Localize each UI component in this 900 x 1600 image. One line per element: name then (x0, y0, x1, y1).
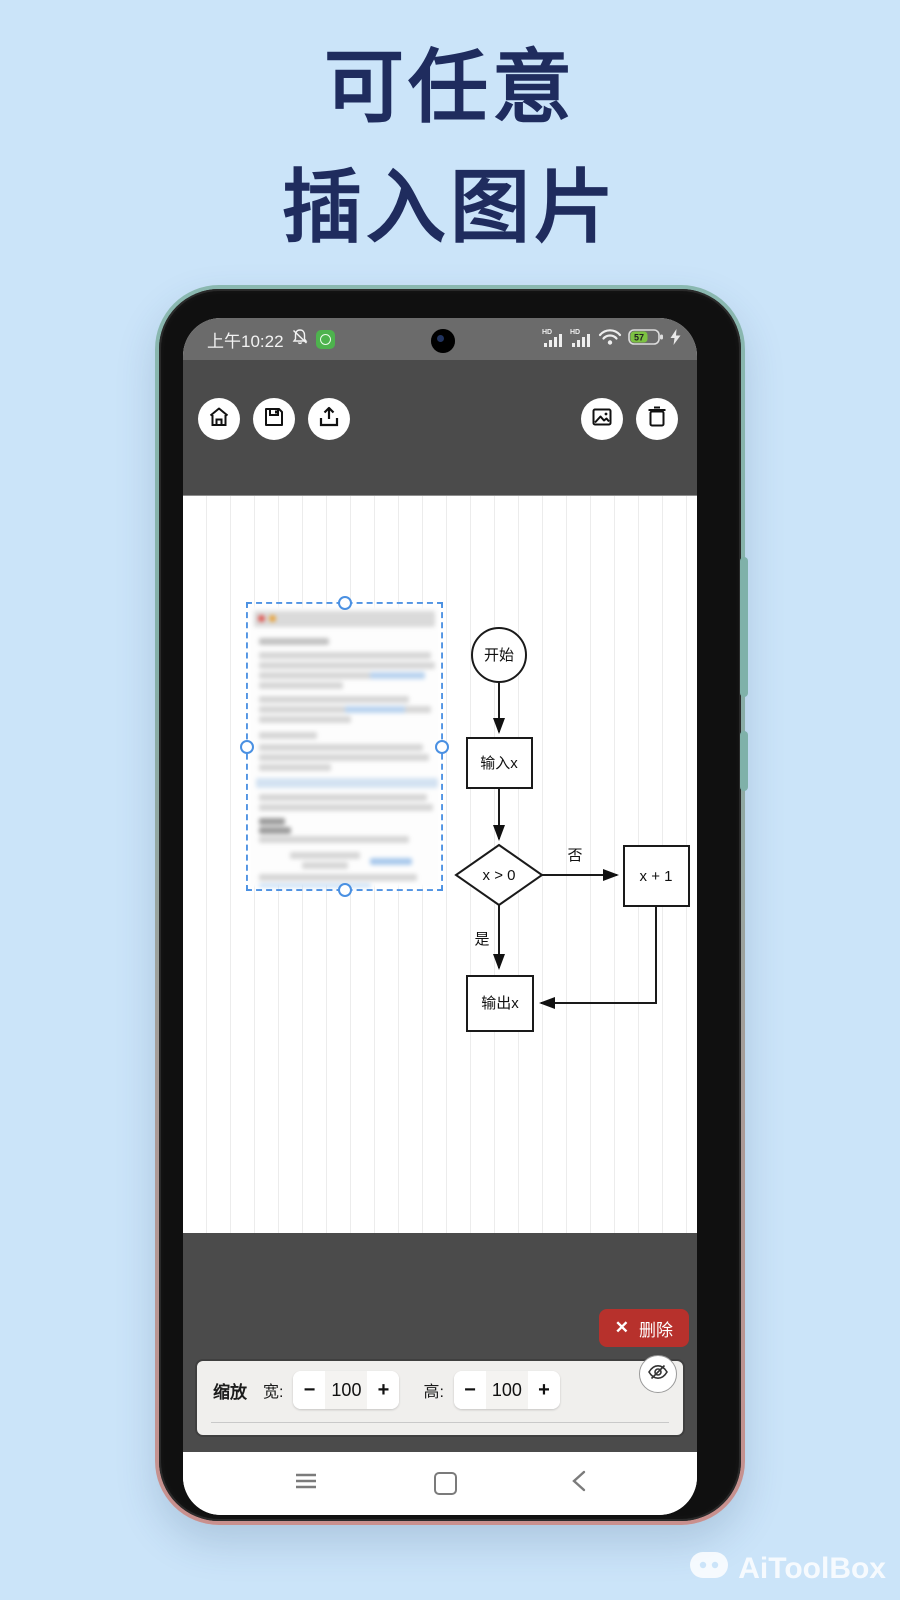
robot-icon (688, 1550, 730, 1588)
flow-increment-label: x + 1 (640, 868, 673, 885)
flow-connector (541, 906, 656, 1003)
width-increase-button[interactable]: + (367, 1371, 399, 1409)
watermark-label: AiToolBox (738, 1552, 886, 1586)
height-increase-button[interactable]: + (528, 1371, 560, 1409)
close-icon: ✕ (615, 1318, 629, 1338)
export-button[interactable] (308, 398, 350, 440)
watermark: AiToolBox (688, 1550, 886, 1588)
width-value: 100 (325, 1371, 367, 1409)
save-button[interactable] (253, 398, 295, 440)
promo-headline: 可任意 插入图片 (0, 28, 900, 268)
signal-sim1-icon: HD (542, 329, 564, 349)
home-button[interactable] (198, 398, 240, 440)
eye-off-icon (647, 1361, 669, 1388)
upload-icon (317, 405, 341, 434)
volume-button (740, 557, 748, 697)
bell-muted-icon (291, 328, 309, 351)
flow-input-label: 输入x (480, 755, 518, 772)
notification-app-icon (316, 330, 335, 349)
phone-screen: 上午10:22 HD (183, 318, 697, 1515)
hide-panel-button[interactable] (639, 1355, 677, 1393)
svg-text:57: 57 (634, 332, 644, 342)
home-icon (207, 405, 231, 434)
clock: 上午10:22 (207, 327, 284, 352)
height-stepper: − 100 + (454, 1371, 560, 1409)
signal-sim2-icon: HD (570, 329, 592, 349)
flow-condition-label: x > 0 (483, 867, 516, 884)
scale-panel: 缩放 宽: − 100 + 高: − 100 + (195, 1359, 685, 1437)
headline-line2: 插入图片 (0, 148, 900, 268)
back-button[interactable] (571, 1469, 587, 1498)
phone-frame: 上午10:22 HD (159, 289, 741, 1521)
resize-handle-top[interactable] (338, 596, 352, 610)
resize-handle-bottom[interactable] (338, 883, 352, 897)
charging-bolt-icon (670, 329, 681, 350)
scale-label: 缩放 (213, 1378, 247, 1403)
android-nav-bar (183, 1452, 697, 1515)
resize-handle-left[interactable] (240, 740, 254, 754)
height-decrease-button[interactable]: − (454, 1371, 486, 1409)
selected-image[interactable] (246, 602, 443, 891)
app-toolbar (183, 360, 697, 495)
flow-start-label: 开始 (484, 647, 514, 664)
front-camera (431, 329, 455, 353)
recents-button[interactable] (293, 1471, 319, 1496)
width-stepper: − 100 + (293, 1371, 399, 1409)
home-square-icon (434, 1472, 457, 1495)
trash-icon (646, 405, 668, 434)
clear-canvas-button[interactable] (636, 398, 678, 440)
width-decrease-button[interactable]: − (293, 1371, 325, 1409)
image-icon (590, 405, 614, 434)
home-nav-button[interactable] (434, 1472, 457, 1495)
height-label: 高: (423, 1378, 443, 1402)
width-label: 宽: (263, 1378, 283, 1402)
battery-icon: 57 (628, 328, 664, 351)
delete-button-label: 删除 (639, 1316, 673, 1341)
power-button (740, 731, 748, 791)
flow-yes-label: 是 (474, 931, 489, 948)
bottom-chrome: ✕ 删除 缩放 宽: − 100 + 高: − (183, 1233, 697, 1452)
flow-no-label: 否 (567, 847, 582, 864)
wifi-icon (598, 328, 622, 351)
panel-divider (211, 1422, 669, 1423)
headline-line1: 可任意 (0, 28, 900, 148)
phone-mockup: 上午10:22 HD (155, 285, 745, 1525)
height-value: 100 (486, 1371, 528, 1409)
resize-handle-right[interactable] (435, 740, 449, 754)
drawing-canvas[interactable]: 开始 输入x x > 0 否 x + 1 是 输出x (183, 495, 697, 1234)
flow-output-label: 输出x (481, 995, 519, 1012)
delete-button[interactable]: ✕ 删除 (599, 1309, 689, 1347)
back-icon (571, 1469, 587, 1498)
save-icon (262, 405, 286, 434)
insert-image-button[interactable] (581, 398, 623, 440)
menu-icon (293, 1471, 319, 1496)
inserted-image-content (250, 606, 439, 887)
